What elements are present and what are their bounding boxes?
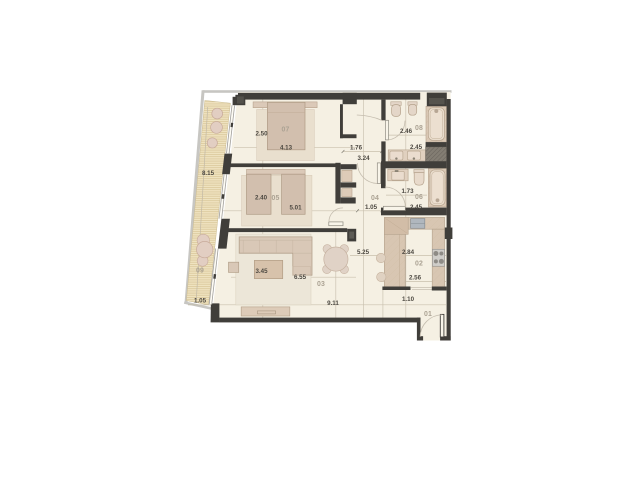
svg-text:1.05: 1.05: [194, 298, 207, 305]
svg-text:2.84: 2.84: [402, 249, 415, 256]
svg-text:9.11: 9.11: [327, 300, 339, 307]
svg-text:2.40: 2.40: [255, 195, 268, 202]
svg-text:2.56: 2.56: [409, 275, 422, 282]
svg-text:1.73: 1.73: [401, 188, 414, 195]
svg-text:09: 09: [196, 267, 204, 274]
svg-text:2.50: 2.50: [255, 131, 268, 138]
svg-text:06: 06: [415, 194, 423, 201]
svg-text:8.15: 8.15: [202, 170, 215, 177]
svg-text:1.05: 1.05: [365, 204, 378, 211]
svg-text:1.76: 1.76: [350, 145, 363, 152]
svg-text:05: 05: [271, 195, 279, 202]
svg-text:07: 07: [281, 127, 289, 134]
svg-text:3.24: 3.24: [357, 155, 370, 162]
svg-text:04: 04: [371, 195, 379, 202]
svg-text:4.13: 4.13: [280, 145, 293, 152]
svg-text:2.46: 2.46: [400, 128, 413, 135]
svg-text:2.45: 2.45: [410, 144, 423, 151]
svg-text:5.25: 5.25: [357, 249, 370, 256]
svg-text:3.45: 3.45: [255, 268, 268, 275]
svg-text:02: 02: [415, 260, 423, 267]
svg-text:2.45: 2.45: [410, 204, 423, 211]
svg-text:01: 01: [424, 311, 432, 318]
svg-text:08: 08: [415, 125, 423, 132]
svg-text:03: 03: [317, 281, 325, 288]
svg-text:1.10: 1.10: [402, 296, 415, 303]
svg-text:5.01: 5.01: [289, 205, 302, 212]
svg-text:6.55: 6.55: [294, 274, 307, 281]
